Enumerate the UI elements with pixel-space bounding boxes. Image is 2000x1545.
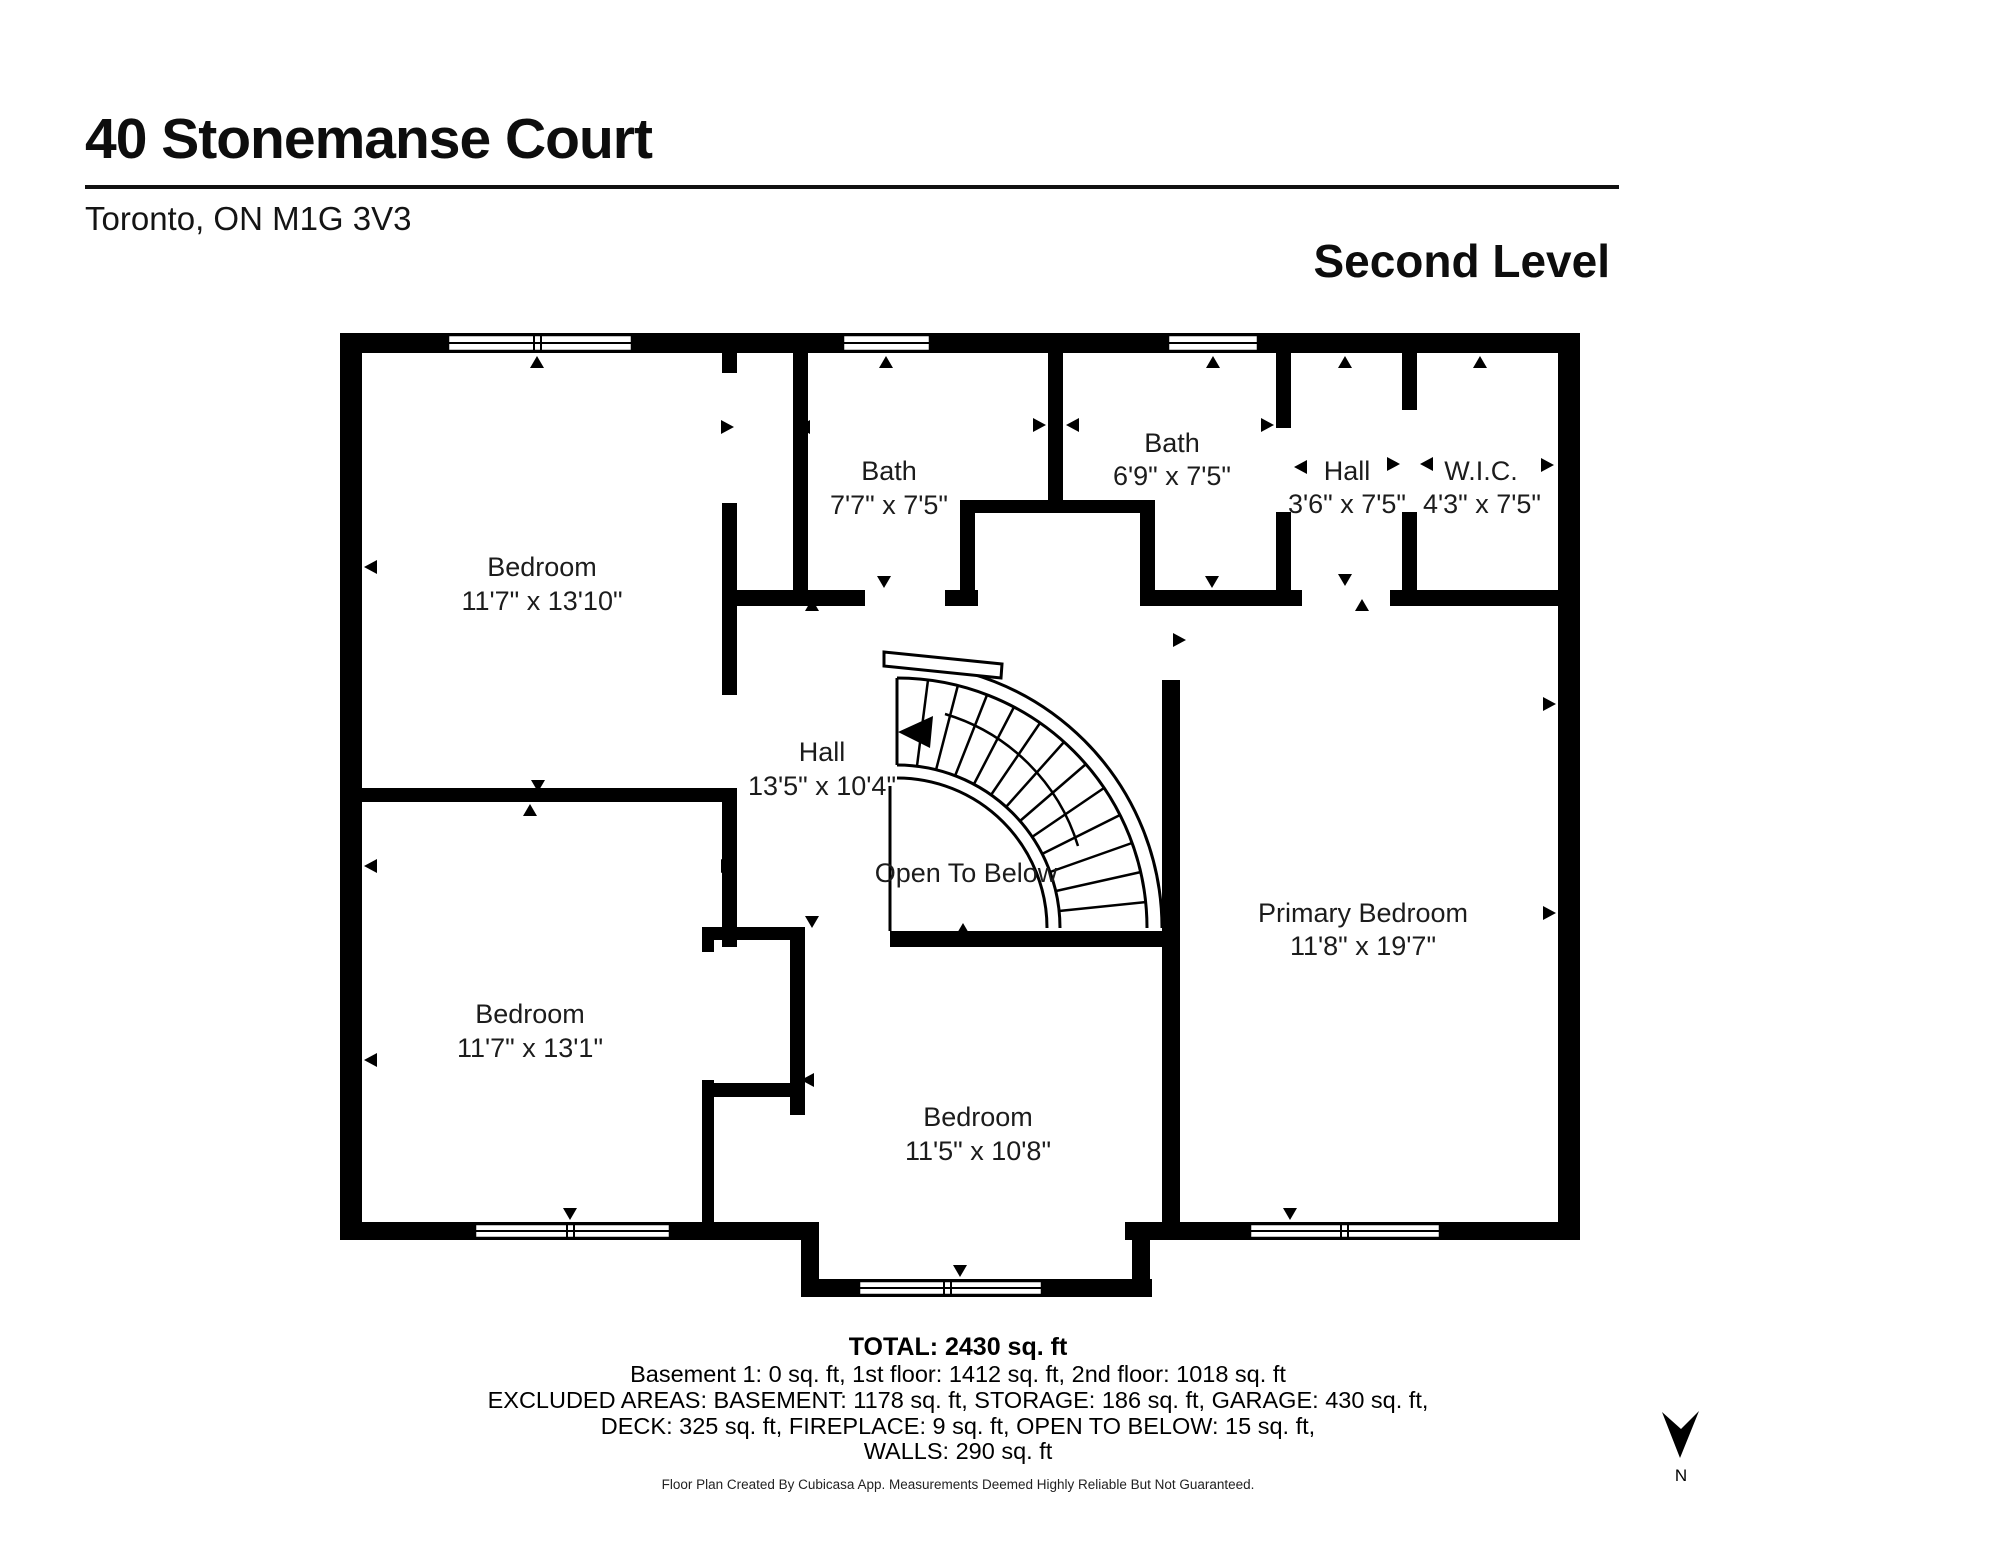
area-line: DECK: 325 sq. ft, FIREPLACE: 9 sq. ft, O… [601, 1413, 1315, 1439]
room-dims: 11'5" x 10'8" [905, 1136, 1051, 1166]
room-label: Primary Bedroom [1258, 898, 1468, 928]
door-marker [1355, 599, 1369, 611]
door-marker [563, 1208, 577, 1220]
area-summary: TOTAL: 2430 sq. ft Basement 1: 0 sq. ft,… [488, 1333, 1429, 1492]
door-marker [1173, 633, 1186, 647]
room-dims: 3'6" x 7'5" [1288, 489, 1406, 519]
door-marker [805, 916, 819, 928]
door-marker [364, 1053, 377, 1067]
wall [702, 927, 805, 940]
level-label: Second Level [1313, 235, 1610, 287]
compass: N [1662, 1411, 1699, 1485]
door-marker [721, 420, 734, 434]
disclaimer: Floor Plan Created By Cubicasa App. Meas… [662, 1477, 1255, 1492]
wall [702, 927, 714, 952]
wall [960, 500, 975, 591]
room-dims: 11'8" x 19'7" [1290, 931, 1436, 961]
wall [890, 931, 1162, 947]
room-dims: 11'7" x 13'10" [461, 586, 622, 616]
page-subtitle: Toronto, ON M1G 3V3 [85, 200, 411, 237]
wall [722, 350, 737, 373]
door-marker [1541, 458, 1554, 472]
staircase [884, 652, 1162, 931]
door-marker [364, 859, 377, 873]
room-label: Bath [1144, 428, 1200, 458]
north-label: N [1675, 1466, 1687, 1485]
wall [1140, 500, 1155, 591]
wall [1048, 350, 1063, 500]
wall [340, 333, 362, 1240]
door-marker [877, 576, 891, 588]
wall [722, 590, 865, 606]
room-label: Open To Below [875, 858, 1058, 888]
window [843, 335, 930, 351]
wall [1276, 512, 1291, 591]
door-marker [1206, 356, 1220, 368]
window [448, 335, 632, 351]
wall [1558, 333, 1580, 1240]
room-dims: 6'9" x 7'5" [1113, 461, 1231, 491]
area-line: WALLS: 290 sq. ft [864, 1438, 1053, 1464]
wall [351, 788, 737, 802]
wall [945, 590, 978, 606]
door-marker [1294, 460, 1307, 474]
header: 40 Stonemanse Court Toronto, ON M1G 3V3 … [85, 107, 1619, 287]
room-dims: 13'5" x 10'4" [748, 771, 896, 801]
door-marker [1338, 356, 1352, 368]
window [475, 1224, 670, 1238]
floor-plan: Bedroom 11'7" x 13'10" Bath 7'7" x 7'5" … [340, 333, 1580, 1297]
window [859, 1281, 1042, 1295]
window [1168, 335, 1258, 351]
room-label: Bedroom [487, 552, 597, 582]
door-marker [1420, 457, 1433, 471]
wall [702, 1080, 714, 1222]
door-marker [953, 1265, 967, 1277]
room-label: Bedroom [475, 999, 585, 1029]
room-label: Bedroom [923, 1102, 1033, 1132]
window [1250, 1224, 1440, 1238]
page-title: 40 Stonemanse Court [85, 107, 653, 171]
door-marker [1033, 418, 1046, 432]
floor-plan-page: 40 Stonemanse Court Toronto, ON M1G 3V3 … [0, 0, 2000, 1545]
door-marker [1543, 697, 1556, 711]
wall [793, 350, 808, 591]
door-marker [364, 560, 377, 574]
wall [702, 1083, 805, 1097]
area-line: Basement 1: 0 sq. ft, 1st floor: 1412 sq… [630, 1361, 1286, 1387]
room-dims: 11'7" x 13'1" [457, 1033, 603, 1063]
wall [1162, 680, 1180, 1222]
wall [1402, 350, 1417, 410]
door-marker [523, 804, 537, 816]
room-dims: 4'3" x 7'5" [1423, 489, 1541, 519]
door-marker [1066, 418, 1079, 432]
door-marker [956, 923, 970, 935]
door-marker [1261, 418, 1274, 432]
wall [960, 500, 1155, 513]
room-label: Hall [1324, 456, 1371, 486]
door-marker [879, 356, 893, 368]
north-arrow-icon [1662, 1411, 1699, 1458]
wall [1140, 590, 1302, 606]
wall [1402, 512, 1417, 591]
room-label: Hall [799, 737, 846, 767]
area-line: EXCLUDED AREAS: BASEMENT: 1178 sq. ft, S… [488, 1387, 1429, 1413]
room-label: Bath [861, 456, 917, 486]
door-marker [1338, 574, 1352, 586]
door-marker [1205, 576, 1219, 588]
total-area: TOTAL: 2430 sq. ft [849, 1333, 1068, 1361]
wall [1276, 350, 1291, 428]
door-marker [530, 356, 544, 368]
wall [1390, 590, 1558, 606]
room-dims: 7'7" x 7'5" [830, 490, 948, 520]
door-marker [1283, 1208, 1297, 1220]
room-label: W.I.C. [1444, 456, 1518, 486]
door-marker [1473, 356, 1487, 368]
door-marker [1543, 906, 1556, 920]
stair-direction-arrow-icon [898, 716, 933, 748]
door-marker [1387, 457, 1400, 471]
